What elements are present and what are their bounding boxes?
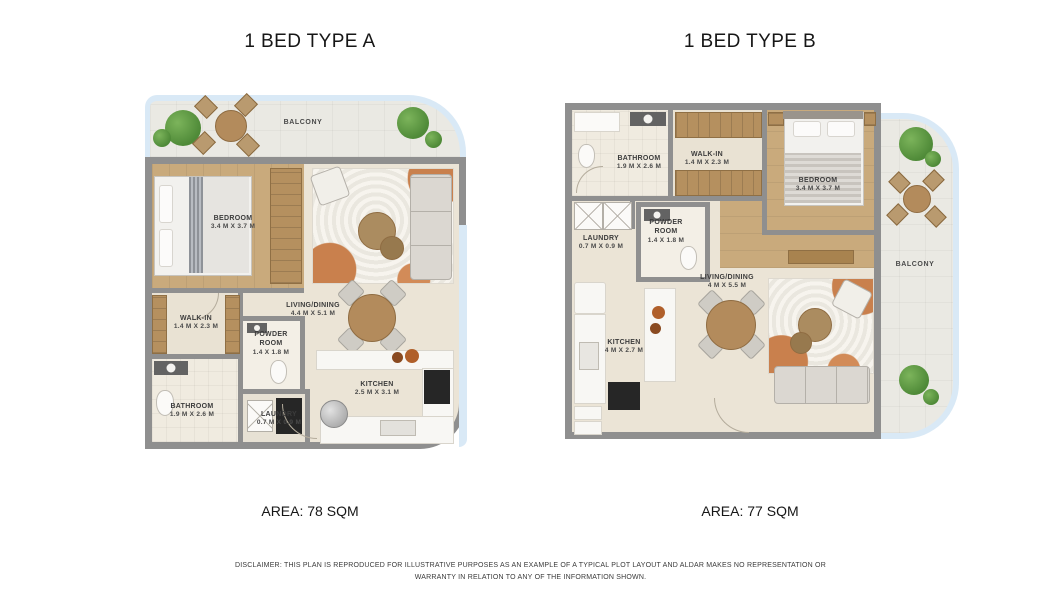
- pillow: [793, 121, 821, 137]
- room-label-bathroom: BATHROOM 1.9 M X 2.6 M: [152, 402, 232, 420]
- kitchen-pot: [652, 306, 665, 319]
- sofa-a: [410, 174, 452, 280]
- plan-b-drawing: BALCONY: [565, 103, 965, 445]
- room-label-bedroom: BEDROOM 3.4 M X 3.7 M: [768, 176, 868, 194]
- room-label-walk-in: WALK-IN 1.4 M X 2.3 M: [667, 150, 747, 168]
- wall: [705, 202, 710, 282]
- toilet: [270, 360, 287, 384]
- kitchen-a-bin: [320, 400, 348, 428]
- room-label-living-dining: LIVING/DINING 4 M X 5.5 M: [682, 273, 772, 291]
- kitchen-a-counter: [316, 350, 454, 370]
- wall: [762, 110, 767, 230]
- balcony-a-label: BALCONY: [253, 119, 353, 126]
- bathtub: [574, 112, 620, 132]
- kitchen-b-island: [644, 288, 676, 382]
- room-label-living-dining: LIVING/DINING 4.4 M X 5.1 M: [268, 301, 358, 319]
- balcony-b-label: BALCONY: [877, 261, 953, 268]
- plan-a-area: AREA: 78 SQM: [145, 503, 475, 519]
- sofa-b: [774, 366, 870, 404]
- kitchen-b-drawer: [574, 421, 602, 435]
- headboard: [783, 111, 863, 119]
- wall: [572, 196, 767, 201]
- wall: [300, 316, 305, 394]
- floor-plan-sheet: 1 BED TYPE A BALCONY: [0, 0, 1061, 603]
- stove: [608, 382, 640, 410]
- nightstand: [768, 112, 784, 126]
- room-label-powder-room: POWDER ROOM 1.4 X 1.8 M: [638, 218, 694, 246]
- stove: [424, 370, 450, 404]
- kitchen-pot: [405, 349, 419, 363]
- plant: [397, 107, 429, 139]
- room-label-walk-in: WALK-IN 1.4 M X 2.3 M: [156, 314, 236, 332]
- door-arc: [714, 398, 749, 433]
- fridge: [574, 282, 606, 314]
- sink: [380, 420, 416, 436]
- balcony-table: [903, 185, 931, 213]
- bathroom-b-vanity: [630, 112, 666, 126]
- plant: [153, 129, 171, 147]
- walkin-b-closet: [675, 170, 762, 196]
- room-label-kitchen: KITCHEN 4 M X 2.7 M: [584, 338, 664, 356]
- unit-a: BEDROOM 3.4 M X 3.7 M WALK-IN 1.4 M X 2.…: [145, 157, 466, 449]
- window-glass-a: [459, 225, 467, 447]
- kitchen-pot: [392, 352, 403, 363]
- pillow: [827, 121, 855, 137]
- plant: [425, 131, 442, 148]
- plan-b-title: 1 BED TYPE B: [560, 31, 940, 53]
- washer: [574, 202, 603, 230]
- washer: [603, 202, 632, 230]
- toilet: [680, 246, 697, 270]
- dining-table-b: [706, 300, 756, 350]
- toilet: [578, 144, 595, 168]
- walkin-b-closet: [675, 112, 762, 138]
- plant: [925, 151, 941, 167]
- disclaimer-text: DISCLAIMER: THIS PLAN IS REPRODUCED FOR …: [231, 560, 831, 583]
- pillow: [159, 185, 173, 223]
- sideboard-b: [788, 250, 854, 264]
- bathroom-a-vanity: [154, 361, 188, 375]
- pillow: [159, 229, 173, 267]
- coffee-table-b: [790, 332, 812, 354]
- room-label-laundry: LAUNDRY 0.7 M X 0.9 M: [572, 234, 630, 252]
- room-label-kitchen: KITCHEN 2.5 M X 3.1 M: [332, 380, 422, 398]
- balcony-table: [215, 110, 247, 142]
- plan-a-title: 1 BED TYPE A: [145, 31, 475, 53]
- unit-b: BATHROOM 1.9 M X 2.6 M WALK-IN 1.4 M X 2…: [565, 103, 881, 439]
- room-label-bedroom: BEDROOM 3.4 M X 3.7 M: [188, 214, 278, 232]
- kitchen-pot: [650, 323, 661, 334]
- coffee-table-a: [380, 236, 404, 260]
- room-label-powder-room: POWDER ROOM 1.4 X 1.8 M: [246, 330, 296, 358]
- room-label-laundry: LAUNDRY 0.7 M X 0.9 M: [244, 410, 314, 428]
- nightstand: [864, 112, 876, 126]
- plant: [923, 389, 939, 405]
- wall: [762, 230, 874, 235]
- plan-a-drawing: BALCONY: [145, 93, 475, 451]
- kitchen-b-drawer: [574, 406, 602, 420]
- plan-b-area: AREA: 77 SQM: [560, 503, 940, 519]
